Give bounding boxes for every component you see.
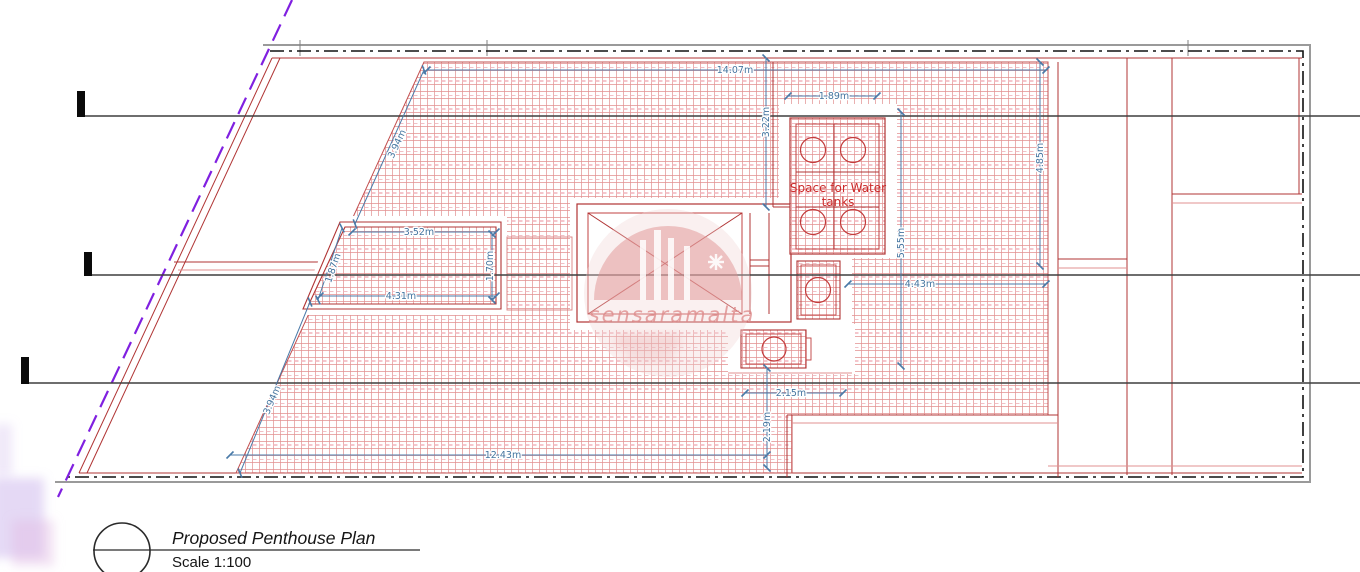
svg-text:4.85m: 4.85m: [1035, 143, 1046, 173]
svg-text:4.31m: 4.31m: [386, 291, 416, 302]
svg-text:3.52m: 3.52m: [404, 227, 434, 238]
svg-text:14.07m: 14.07m: [717, 65, 753, 76]
water-tanks-label-line2: tanks: [822, 195, 855, 209]
svg-text:1.70m: 1.70m: [485, 251, 496, 281]
watermark-star-icon: [708, 254, 724, 270]
watermark-text: sensaramalta: [589, 303, 756, 327]
drawing-scale: Scale 1:100: [172, 554, 251, 571]
section-marker-c: [21, 357, 29, 384]
plan-drawing: Space for Water tanks: [0, 0, 1360, 572]
svg-text:3.22m: 3.22m: [761, 107, 772, 137]
svg-text:2.15m: 2.15m: [776, 388, 806, 399]
section-marker-a: [77, 91, 85, 117]
svg-text:4.43m: 4.43m: [905, 279, 935, 290]
water-tanks-label-line1: Space for Water: [790, 181, 886, 195]
section-marker-b: [84, 252, 92, 276]
site-boundary-line: [58, 0, 292, 497]
svg-text:12.43m: 12.43m: [485, 450, 521, 461]
page-smudges: [0, 424, 54, 566]
svg-text:2.19m: 2.19m: [762, 412, 773, 442]
title-block: Proposed Penthouse Plan Scale 1:100: [93, 523, 420, 572]
drawing-number-bubble: [94, 523, 150, 572]
svg-text:5.55m: 5.55m: [896, 228, 907, 258]
drawing-title: Proposed Penthouse Plan: [172, 528, 375, 548]
penthouse-plan-canvas: Space for Water tanks: [0, 0, 1360, 572]
svg-text:1.89m: 1.89m: [819, 91, 849, 102]
